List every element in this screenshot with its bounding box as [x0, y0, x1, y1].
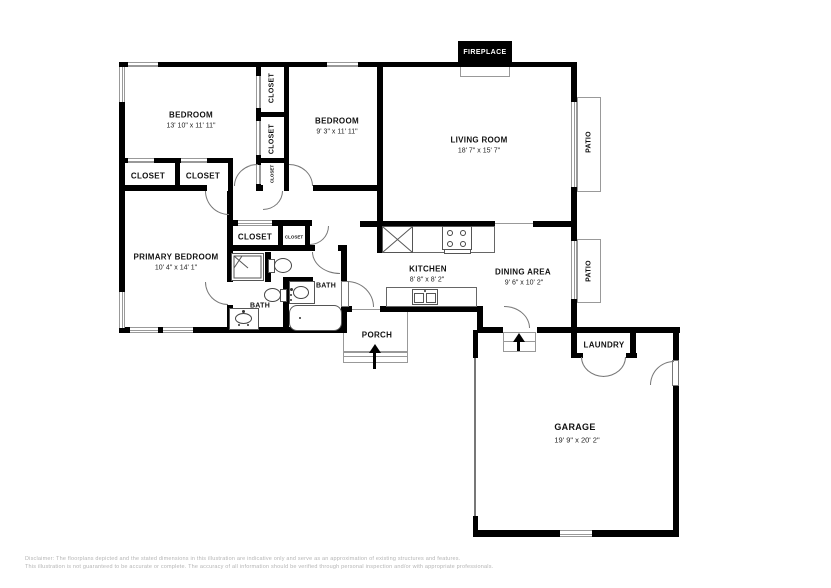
closetcol-door-2 — [256, 121, 261, 155]
shower-icon — [231, 253, 264, 281]
wall-garage-right — [673, 327, 679, 530]
door-arc-laundry-r — [603, 357, 626, 377]
room-label-garage: GARAGE — [554, 422, 595, 432]
wall-garage-left-bottom — [473, 516, 478, 537]
wall-laundry-left — [571, 333, 577, 358]
window-garage-bottom — [560, 530, 592, 537]
wall-hall-top-e — [313, 185, 383, 191]
slider-living-patio — [571, 102, 577, 187]
wall-laundry-right — [630, 333, 636, 358]
room-dims-kitchen: 8' 8" x 8' 2" — [410, 277, 445, 284]
handle-bathB-2 — [247, 324, 249, 326]
burner-1 — [447, 230, 453, 236]
wall-closetrow-div — [175, 158, 180, 191]
toilet-icon-bathB — [264, 288, 281, 302]
room-label-bathA: BATH — [316, 283, 336, 290]
sink-icon-bathB — [235, 313, 252, 324]
closet-label-col3: CLOSET — [270, 165, 275, 183]
stove-icon — [442, 226, 472, 250]
door-arc-bedroom1 — [234, 164, 258, 186]
toilet-tank-bathB — [280, 289, 287, 302]
wall-south-b — [537, 327, 680, 333]
window-primary-bottom-2 — [163, 327, 193, 333]
burner-4 — [460, 241, 466, 247]
room-label-porch: PORCH — [362, 331, 392, 340]
door-arc-bathA — [312, 252, 340, 274]
closet-door-primary — [238, 220, 272, 226]
garage-door — [474, 358, 476, 516]
room-label-dining: DINING AREA — [495, 268, 551, 277]
room-dims-bedroom2: 9' 3" x 11' 11" — [316, 129, 357, 136]
door-arc-laundry-l — [581, 357, 604, 377]
room-label-kitchen: KITCHEN — [409, 265, 447, 274]
wall-garage-left-top — [473, 330, 478, 358]
window-bedroom2-top — [327, 62, 358, 67]
handle-bathA-2 — [290, 299, 292, 301]
wall-hall-top-a — [119, 185, 207, 191]
window-primary-bottom-1 — [130, 327, 158, 333]
sink-faucet — [424, 290, 426, 292]
bathtub-icon — [289, 305, 342, 331]
closet-label-1: CLOSET — [131, 172, 165, 181]
tub-drain — [299, 317, 301, 319]
door-arc-porch — [347, 281, 374, 307]
door-arc-garage-side — [650, 361, 674, 385]
fireplace-label: FIREPLACE — [458, 41, 512, 63]
toilet-icon-bathA — [274, 258, 292, 273]
stove-tray — [444, 249, 471, 254]
room-dims-garage: 19' 9" x 20' 2" — [554, 436, 599, 445]
room-label-bedroom1: BEDROOM — [169, 111, 213, 120]
room-dims-bedroom1: 13' 10" x 11' 11" — [166, 123, 215, 130]
door-arc-smallcloset — [310, 226, 329, 245]
door-arc-entry — [504, 306, 530, 328]
opening-kitchen-dining — [495, 223, 533, 224]
burner-2 — [460, 230, 466, 236]
wall-closet-div — [278, 220, 283, 251]
wall-closetrow-right — [228, 158, 233, 191]
sink-basin-1 — [414, 293, 424, 303]
wall-living-left — [377, 62, 383, 227]
handle-bathB-1 — [238, 324, 240, 326]
faucet-bathA — [290, 288, 293, 291]
closet-label-2: CLOSET — [186, 172, 220, 181]
closet-label-small: CLOSET — [285, 235, 303, 240]
wall-bathblock-top-a — [227, 245, 315, 251]
patio-label-2: PATIO — [586, 260, 593, 282]
room-label-living: LIVING ROOM — [450, 136, 507, 145]
room-label-bathB: BATH — [250, 303, 270, 310]
door-arc-bathB — [205, 282, 228, 305]
disclaimer-line-2: This illustration is not guaranteed to b… — [25, 564, 493, 570]
room-dims-living: 18' 7" x 15' 7" — [458, 148, 500, 155]
closet-label-primary: CLOSET — [238, 233, 272, 242]
door-arc-primary — [205, 191, 229, 215]
door-arc-hallcloset — [263, 191, 283, 210]
closetcol-door-1 — [256, 76, 261, 108]
burner-3 — [447, 241, 453, 247]
wall-closetcol-div1 — [256, 112, 289, 117]
wall-kitchen-right — [477, 306, 483, 333]
pantry-icon — [382, 226, 413, 253]
faucet-bathB — [242, 310, 245, 313]
room-label-bedroom2: BEDROOM — [315, 117, 359, 126]
closet-label-col2: CLOSET — [269, 124, 276, 154]
handle-bathA-1 — [290, 294, 292, 296]
disclaimer-line-1: Disclaimer: The floorplans depicted and … — [25, 556, 460, 562]
closet-door-2 — [181, 158, 207, 163]
sink-basin-2 — [426, 293, 436, 303]
window-bedroom1-top — [128, 62, 158, 67]
closet-door-1 — [128, 158, 154, 163]
sink-icon-bathA — [293, 286, 309, 299]
patio-label-1: PATIO — [586, 131, 593, 153]
floor-plan: FIREPLACE — [0, 0, 831, 588]
door-arc-bedroom2 — [289, 164, 313, 186]
room-label-primary: PRIMARY BEDROOM — [134, 253, 219, 262]
room-dims-primary: 10' 4" x 14' 1" — [155, 265, 197, 272]
window-bedroom1-left — [119, 67, 125, 102]
closet-label-col1: CLOSET — [269, 73, 276, 103]
room-dims-dining: 9' 6" x 10' 2" — [505, 280, 543, 287]
porch-door-leaf — [341, 281, 349, 307]
wall-closetcol-div2 — [256, 158, 289, 163]
slider-dining-patio — [571, 241, 577, 299]
room-label-laundry: LAUNDRY — [584, 341, 625, 350]
window-primary-left — [119, 292, 125, 328]
